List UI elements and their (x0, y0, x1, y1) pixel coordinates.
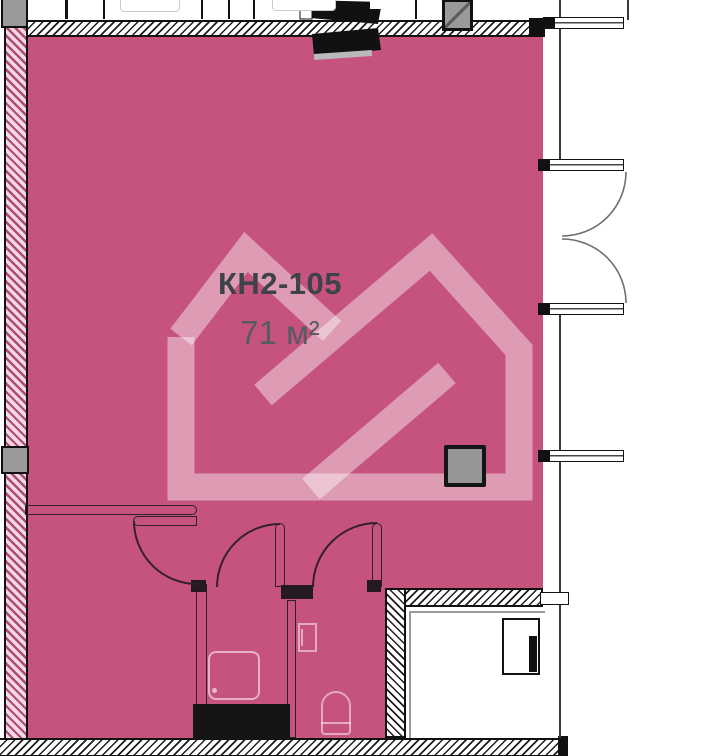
neighbour-partition-line (228, 0, 230, 19)
column-inside-unit (444, 445, 486, 487)
facade-glass-line (559, 305, 561, 738)
neighbour-partition-line (65, 0, 68, 19)
floor-plan-canvas: КН2-105 71 м² (0, 0, 710, 756)
door-leaf (133, 516, 197, 526)
neighbour-partition-line (415, 0, 417, 19)
neighbour-partition-line (201, 0, 203, 19)
door-post (367, 580, 381, 592)
door-leaf (372, 523, 382, 587)
window-bar (540, 592, 569, 605)
facade-glass-line (627, 0, 629, 20)
neighbour-fixture (272, 0, 336, 11)
left-load-wall (4, 27, 28, 738)
shower-drain-icon (212, 688, 217, 693)
ventilation-shaft (193, 704, 290, 739)
window-bar (543, 17, 624, 29)
door-leaf (275, 523, 285, 587)
bottom-load-wall (0, 738, 568, 756)
bottom-right-wall-horizontal (385, 588, 543, 607)
neighbour-fixture (120, 0, 180, 12)
window-bar (538, 159, 624, 171)
bottom-wall-end-cap (558, 736, 568, 755)
door-post (191, 580, 206, 592)
column-top (442, 0, 473, 31)
column-top-left (1, 0, 28, 28)
toilet-seat-line (321, 722, 351, 724)
unit-id-label: КН2-105 (160, 266, 400, 302)
double-door-swing-arc (562, 172, 626, 303)
unit-area-label: 71 м² (160, 314, 400, 352)
interior-wall (25, 505, 197, 515)
door-post (281, 585, 313, 599)
unit-highlight-region[interactable] (0, 0, 710, 756)
toilet-icon (321, 691, 351, 735)
window-bar (538, 450, 624, 462)
bottom-right-wall-vertical (385, 588, 406, 738)
column-left (1, 446, 29, 474)
window-bar (538, 303, 624, 315)
neighbour-partition-line (253, 0, 255, 19)
neighbour-partition-line (103, 0, 105, 19)
neighbour-niche-detail (529, 636, 537, 672)
shower-tray-icon (208, 651, 260, 700)
electric-panel-detail (301, 629, 303, 646)
